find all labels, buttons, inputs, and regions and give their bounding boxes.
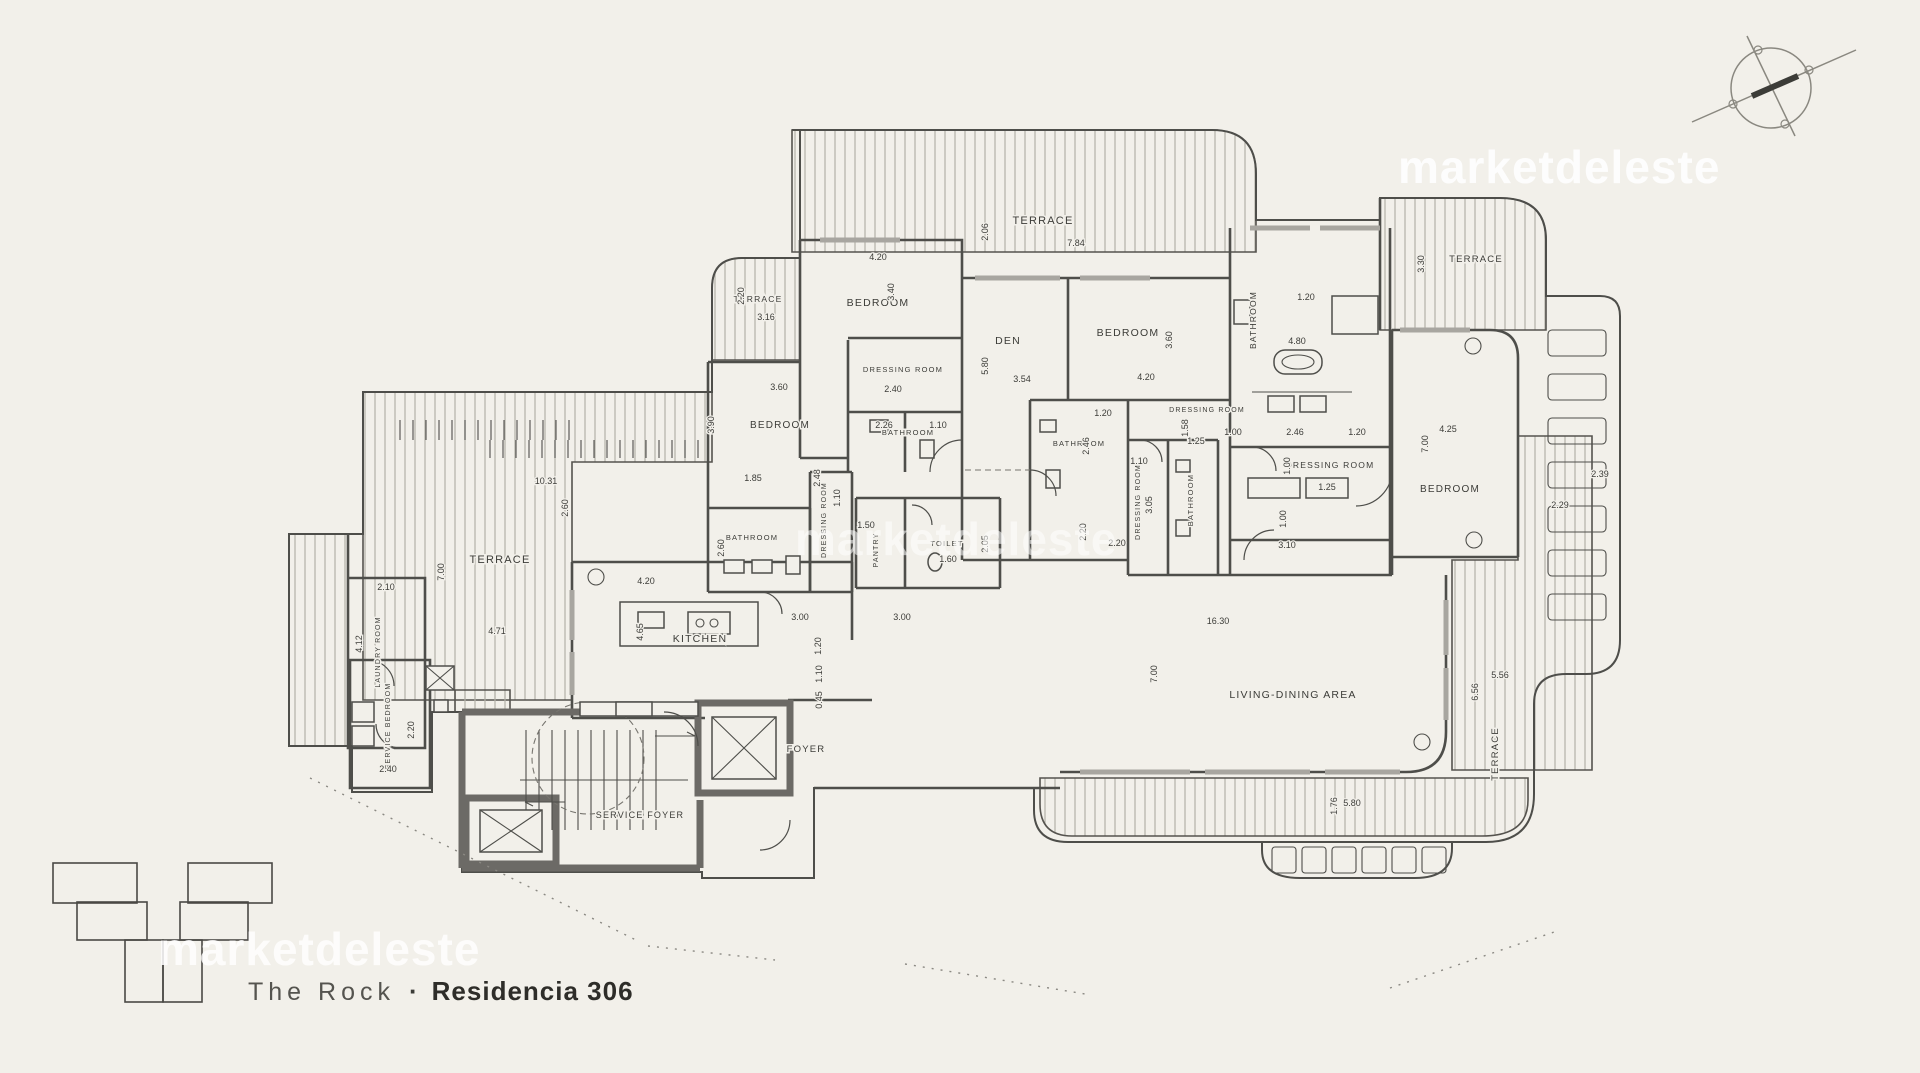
dimension-label: 2.29 bbox=[1551, 500, 1569, 510]
room-label: DRESSING ROOM bbox=[1135, 464, 1142, 540]
dimension-label: 4.80 bbox=[1288, 336, 1306, 346]
planter bbox=[1362, 847, 1386, 873]
room-label: BEDROOM bbox=[847, 297, 910, 309]
dimension-label: 2.20 bbox=[406, 721, 416, 739]
dimension-label: 1.58 bbox=[1180, 419, 1190, 437]
room-label: TERRACE bbox=[470, 554, 531, 566]
terrace-hatching bbox=[289, 130, 1592, 836]
dimension-label: 4.20 bbox=[637, 576, 655, 586]
dimension-label: 2.39 bbox=[1591, 469, 1609, 479]
planter bbox=[1272, 847, 1296, 873]
room-label: KITCHEN bbox=[673, 633, 728, 645]
room-label: DRESSING ROOM bbox=[821, 482, 828, 558]
planter bbox=[1332, 847, 1356, 873]
dimension-label: 5.80 bbox=[980, 357, 990, 375]
dimension-label: 1.50 bbox=[857, 520, 875, 530]
dimension-label: 1.20 bbox=[813, 637, 823, 655]
dimension-label: 1.10 bbox=[1130, 456, 1148, 466]
dimension-label: 3.30 bbox=[1416, 255, 1426, 273]
room-label: TOILET bbox=[930, 539, 963, 548]
dimension-label: 10.31 bbox=[535, 476, 558, 486]
keyplan-unit bbox=[180, 902, 248, 940]
room-label: TERRACE bbox=[1449, 254, 1503, 265]
planter bbox=[1302, 847, 1326, 873]
dimension-label: 3.00 bbox=[893, 612, 911, 622]
dimension-label: 2.05 bbox=[980, 535, 990, 553]
dimension-label: 2.40 bbox=[379, 764, 397, 774]
dimension-label: 2.20 bbox=[1078, 523, 1088, 541]
caption-separator: · bbox=[409, 976, 418, 1007]
room-label: BEDROOM bbox=[750, 420, 810, 431]
keyplan-unit bbox=[125, 940, 163, 1002]
dimension-label: 3.05 bbox=[1144, 496, 1154, 514]
dimension-label: 4.12 bbox=[354, 635, 364, 653]
dimension-label: 2.46 bbox=[1286, 427, 1304, 437]
dimension-label: 3.60 bbox=[770, 382, 788, 392]
dimension-label: 3.54 bbox=[1013, 374, 1031, 384]
room-label: SERVICE BEDROOM bbox=[385, 683, 392, 770]
room-label: DRESSING ROOM bbox=[863, 365, 943, 374]
dimension-label: 4.20 bbox=[869, 252, 887, 262]
dimension-label: 1.60 bbox=[939, 554, 957, 564]
dimension-label: 6.56 bbox=[1470, 683, 1480, 701]
unit-name: Residencia 306 bbox=[432, 976, 634, 1007]
room-label: BATHROOM bbox=[1186, 474, 1195, 526]
keyplan-highlighted-unit bbox=[188, 863, 272, 903]
dimension-label: 3.90 bbox=[706, 416, 716, 434]
dimension-label: 0.45 bbox=[814, 691, 824, 709]
dimension-label: 1.00 bbox=[1224, 427, 1242, 437]
dimension-label: 2.60 bbox=[560, 499, 570, 517]
dimension-label: 16.30 bbox=[1207, 616, 1230, 626]
dimension-label: 2.10 bbox=[377, 582, 395, 592]
dimension-label: 1.10 bbox=[929, 420, 947, 430]
dimension-label: 1.76 bbox=[1329, 797, 1339, 815]
dimension-label: 2.60 bbox=[716, 539, 726, 557]
planter-boxes bbox=[1272, 847, 1446, 873]
dimension-label: 5.56 bbox=[1491, 670, 1509, 680]
keyplan-unit bbox=[77, 902, 147, 940]
room-label: BATHROOM bbox=[726, 533, 778, 542]
dimension-label: 1.20 bbox=[1348, 427, 1366, 437]
room-label: BEDROOM bbox=[1420, 484, 1480, 495]
floor-plan-page: TERRACETERRACETERRACETERRACETERRACEBEDRO… bbox=[0, 0, 1920, 1073]
dimension-label: 1.20 bbox=[1297, 292, 1315, 302]
dimension-label: 2.46 bbox=[1081, 437, 1091, 455]
dimension-label: 1.00 bbox=[1278, 510, 1288, 528]
dimension-label: 4.25 bbox=[1439, 424, 1457, 434]
keyplan-unit bbox=[163, 940, 202, 1002]
dimension-label: 4.65 bbox=[635, 623, 645, 641]
room-label: BATHROOM bbox=[1053, 439, 1105, 448]
dimension-label: 3.60 bbox=[1164, 331, 1174, 349]
room-label: LIVING-DINING AREA bbox=[1229, 689, 1356, 701]
room-label: PANTRY bbox=[873, 533, 880, 568]
dimension-label: 7.00 bbox=[1149, 665, 1159, 683]
dimension-label: 3.00 bbox=[791, 612, 809, 622]
dimension-label: 5.80 bbox=[1343, 798, 1361, 808]
room-label: BEDROOM bbox=[1097, 327, 1160, 339]
planter bbox=[1422, 847, 1446, 873]
dimension-label: 7.00 bbox=[436, 563, 446, 581]
room-label: DEN bbox=[995, 335, 1021, 347]
planter bbox=[1392, 847, 1416, 873]
dimension-label: 2.40 bbox=[884, 384, 902, 394]
room-label: DRESSING ROOM bbox=[1169, 407, 1245, 414]
dimension-label: 4.71 bbox=[488, 626, 506, 636]
room-label: TERRACE bbox=[1013, 215, 1074, 227]
dimension-label: 4.20 bbox=[1137, 372, 1155, 382]
dimension-label: 7.84 bbox=[1067, 238, 1085, 248]
dimension-label: 1.25 bbox=[1187, 436, 1205, 446]
room-label: LAUNDRY ROOM bbox=[375, 616, 382, 687]
dimension-label: 1.00 bbox=[1282, 457, 1292, 475]
plan-caption: The Rock · Residencia 306 bbox=[248, 976, 634, 1007]
room-label: DRESSING ROOM bbox=[1286, 460, 1375, 470]
dimension-label: 2.20 bbox=[736, 287, 746, 305]
keyplan-unit bbox=[53, 863, 137, 903]
louver-slat bbox=[1548, 374, 1606, 400]
room-label: BATHROOM bbox=[1248, 291, 1258, 349]
dimension-label: 2.26 bbox=[875, 420, 893, 430]
louver-slat bbox=[1548, 330, 1606, 356]
dimension-label: 1.10 bbox=[814, 665, 824, 683]
compass-icon bbox=[1692, 36, 1856, 136]
dimension-label: 2.20 bbox=[1108, 538, 1126, 548]
dimension-label: 2.48 bbox=[812, 469, 822, 487]
dimension-label: 1.20 bbox=[1094, 408, 1112, 418]
dimension-label: 1.85 bbox=[744, 473, 762, 483]
dimension-label: 3.16 bbox=[757, 312, 775, 322]
room-label: SERVICE FOYER bbox=[596, 810, 684, 820]
dimension-label: 2.06 bbox=[980, 223, 990, 241]
dimension-label: 1.10 bbox=[832, 489, 842, 507]
room-label: FOYER bbox=[787, 744, 826, 755]
dimension-label: 3.40 bbox=[886, 283, 896, 301]
dimension-label: 7.00 bbox=[1420, 435, 1430, 453]
dimension-label: 1.25 bbox=[1318, 482, 1336, 492]
room-label: TERRACE bbox=[1490, 727, 1501, 781]
key-plan bbox=[53, 863, 272, 1002]
project-name: The Rock bbox=[248, 978, 395, 1007]
floor-plan-drawing: TERRACETERRACETERRACETERRACETERRACEBEDRO… bbox=[0, 0, 1920, 1073]
dimension-label: 3.10 bbox=[1278, 540, 1296, 550]
